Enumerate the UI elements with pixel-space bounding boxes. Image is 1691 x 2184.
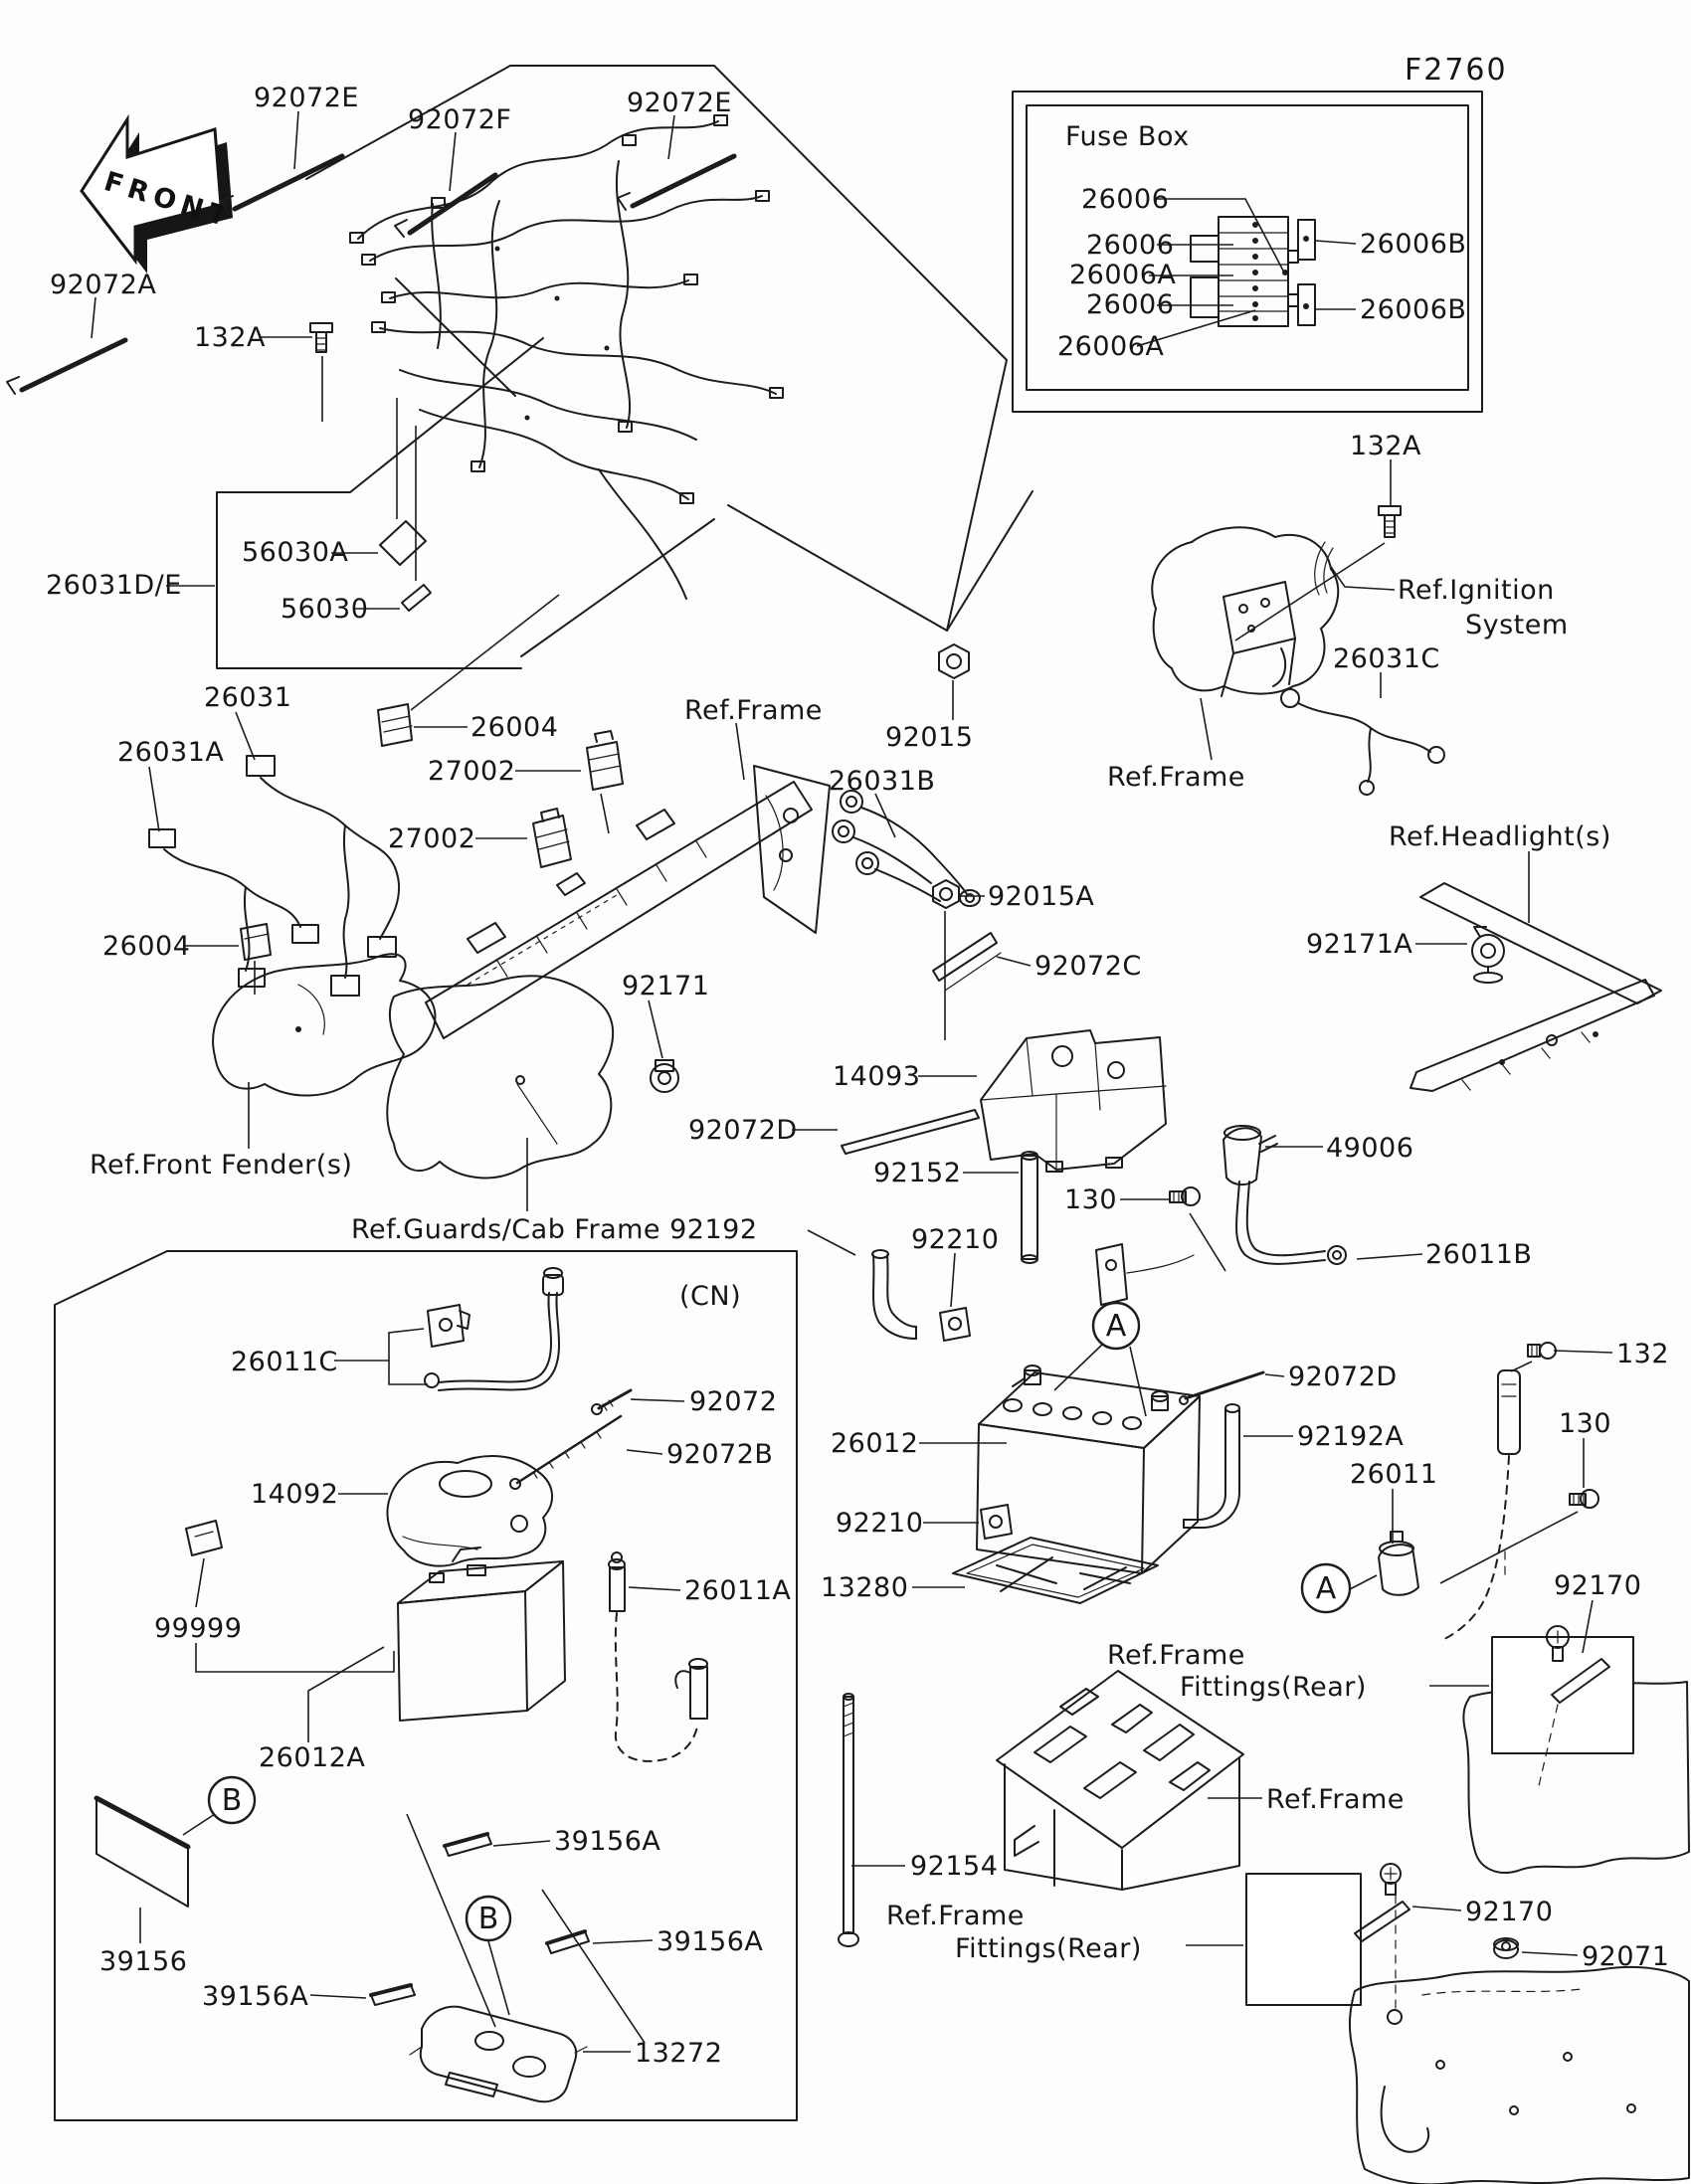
part-label: 92071: [1582, 1941, 1669, 1972]
panel-92170-top: [1492, 1626, 1633, 1790]
leader-line: [1331, 567, 1395, 590]
leader-line: [1412, 1907, 1461, 1911]
part-label: 92015A: [988, 881, 1094, 912]
leader-line: [808, 1230, 855, 1255]
part-label: 14093: [833, 1061, 920, 1092]
part-label: 26011A: [684, 1575, 791, 1606]
part-label: 26004: [470, 712, 558, 743]
ignition-frame-bracket-drawing: [1152, 527, 1338, 696]
battery-26012-drawing: [977, 1365, 1200, 1573]
part-label: 92210: [836, 1508, 923, 1539]
leader-line: [196, 1558, 204, 1607]
leader-line: [196, 1643, 394, 1672]
bolt-132: [1528, 1343, 1556, 1359]
sticker-99999: [186, 1521, 222, 1555]
part-label: Fittings(Rear): [955, 1933, 1142, 1964]
part-label: 39156A: [202, 1981, 308, 2012]
callout-circles-layer: AABB: [209, 1303, 1350, 1940]
bolt-132a-top: [310, 323, 332, 352]
leader-line: [488, 1941, 509, 2015]
rear-carrier-drawing: [997, 1671, 1243, 1890]
part-label: 26012: [831, 1428, 918, 1459]
callout-letter: B: [478, 1902, 499, 1936]
part-label: 26004: [102, 931, 190, 962]
leader-line: [411, 595, 559, 710]
clip-92210-bottom: [981, 1505, 1012, 1539]
leader-line: [493, 1841, 550, 1846]
cable-26011c-drawing: [425, 1268, 563, 1390]
leader-line: [334, 1329, 424, 1361]
part-label: 92072C: [1034, 951, 1142, 982]
part-labels-layer: 92072E92072F92072A132A92072EFuse Box2600…: [46, 83, 1669, 2069]
tray-13272-drawing: [410, 2007, 587, 2102]
leader-line: [668, 115, 674, 159]
leader-line: [294, 111, 298, 169]
bolt-92154: [839, 1694, 858, 1946]
clamp-92171: [651, 1060, 678, 1092]
leader-line: [1130, 1347, 1146, 1416]
part-label: 130: [1064, 1184, 1117, 1215]
harness-26031b-drawing: [833, 791, 980, 906]
part-label: 92015: [885, 722, 973, 753]
part-label: 92072A: [50, 270, 156, 300]
part-label: 99999: [154, 1613, 242, 1644]
part-label: 92072: [689, 1386, 777, 1417]
guards-cab-frame-drawing: [387, 976, 613, 1178]
part-label: 26006B: [1360, 294, 1466, 325]
leader-line: [450, 132, 456, 191]
parts-diagram-canvas: F2760 FRONT: [0, 0, 1691, 2184]
part-label: Fittings(Rear): [1180, 1672, 1367, 1703]
part-label: 13280: [821, 1572, 908, 1603]
bolt-130-right: [1570, 1490, 1598, 1508]
part-label: 26012A: [259, 1742, 365, 1773]
part-label: 92170: [1465, 1897, 1553, 1927]
callout-letter: B: [222, 1783, 243, 1818]
harness-26031a-drawing: [149, 829, 318, 987]
part-label: Ref.Frame: [1107, 762, 1245, 793]
leader-line: [601, 794, 609, 833]
plate-56030a: [380, 521, 426, 565]
part-label: 26031D/E: [46, 570, 182, 601]
part-label: 49006: [1326, 1133, 1413, 1164]
headlight-bracket-drawing: [1410, 883, 1661, 1091]
leader-line: [149, 767, 159, 831]
part-label: 39156A: [657, 1926, 763, 1957]
part-label: 132A: [194, 322, 266, 353]
leader-line: [308, 1647, 384, 1742]
leader-line: [631, 1399, 684, 1401]
part-label: (CN): [679, 1281, 741, 1312]
part-label: 26006A: [1057, 331, 1164, 362]
grommet-92071: [1494, 1938, 1518, 1958]
leader-line: [997, 957, 1031, 966]
part-label: 130: [1559, 1408, 1611, 1439]
part-label: Ref.Frame: [684, 695, 823, 726]
part-label: 92152: [873, 1158, 961, 1188]
leader-line: [1316, 241, 1356, 244]
leader-line: [236, 712, 255, 760]
part-label: Fuse Box: [1065, 121, 1190, 152]
strip-39156a-1: [445, 1834, 491, 1856]
part-label: Ref.Headlight(s): [1389, 821, 1611, 852]
battery-26012a-drawing: [398, 1547, 565, 1721]
leader-line: [310, 1995, 366, 1998]
relay-27002-top: [587, 731, 623, 790]
screw-92072b: [510, 1416, 621, 1489]
leader-line: [1201, 698, 1212, 760]
part-label: 26006: [1086, 230, 1174, 261]
part-label: 92072F: [408, 104, 511, 135]
leader-line: [183, 1814, 215, 1835]
part-label: Ref.Front Fender(s): [90, 1150, 352, 1181]
part-label: 56030: [281, 594, 368, 625]
part-label: 26006: [1081, 184, 1169, 215]
sticker-39156: [96, 1798, 188, 1907]
part-label: 26011: [1350, 1459, 1437, 1490]
part-label: 56030A: [242, 537, 348, 568]
relay-27002-bottom: [533, 809, 571, 867]
leader-line: [629, 1587, 680, 1590]
part-label: Ref.Frame: [1107, 1640, 1245, 1671]
part-label: 92072D: [688, 1115, 798, 1146]
front-arrow: FRONT: [82, 119, 236, 273]
bracket-92072c: [933, 933, 1001, 991]
leader-line: [627, 1450, 662, 1454]
strip-56030: [402, 585, 431, 611]
part-label: 26031B: [829, 766, 935, 797]
rod-92072d-left: [842, 1110, 979, 1154]
leader-line: [1265, 1374, 1284, 1376]
leader-line: [1554, 1351, 1612, 1353]
cable-26011-drawing: [1379, 1370, 1520, 1641]
part-label: 92072D: [1288, 1362, 1398, 1392]
panel-fittings-rear-bottom: [1246, 1864, 1409, 2011]
part-label: 13272: [635, 2038, 722, 2069]
callout-letter: A: [1106, 1309, 1127, 1344]
leader-line: [389, 1361, 428, 1384]
part-label: 92192A: [1297, 1421, 1404, 1452]
leader-line: [951, 1253, 955, 1307]
figure-code: F2760: [1405, 53, 1508, 88]
part-label: 92171A: [1306, 929, 1412, 960]
bolt-132a-right: [1379, 506, 1401, 537]
skid-plate-drawing: [1350, 1967, 1689, 2184]
part-label: 132: [1616, 1339, 1669, 1369]
part-label: 92171: [622, 971, 709, 1001]
part-label: Ref.Frame: [1266, 1784, 1405, 1815]
nut-92015a: [933, 880, 959, 908]
leader-line: [649, 1001, 662, 1058]
part-label: 27002: [388, 823, 475, 854]
diagram-artwork: [7, 66, 1689, 2184]
front-fender-drawing: [213, 954, 435, 1095]
part-label: 92154: [910, 1851, 998, 1882]
battery-case-14093-drawing: [981, 1030, 1166, 1172]
tube-92152: [1022, 1152, 1037, 1263]
fuse-stack-drawing: [1191, 217, 1315, 326]
boot-49006: [1223, 1126, 1277, 1184]
leader-line: [1522, 1952, 1578, 1955]
part-label: 92072B: [666, 1439, 773, 1470]
leader-line: [92, 297, 95, 338]
rod-92072d-right: [1180, 1372, 1263, 1404]
part-label: 26031A: [117, 737, 224, 768]
connector-26004-right: [378, 704, 412, 746]
clip-92210-top: [940, 1308, 970, 1341]
part-label: 26011C: [231, 1347, 338, 1377]
part-label: Ref.Ignition: [1398, 575, 1555, 606]
part-label: 26006B: [1360, 229, 1466, 260]
leader-line: [1357, 1254, 1422, 1259]
bolt-130-left: [1170, 1187, 1200, 1205]
part-label: 39156A: [554, 1826, 660, 1857]
part-label: 26006A: [1069, 260, 1176, 290]
part-label: 39156: [99, 1946, 187, 1977]
leader-line: [1511, 1362, 1532, 1371]
rod-92192a: [1184, 1404, 1239, 1528]
part-label: 14092: [251, 1479, 338, 1510]
part-label: 27002: [428, 756, 515, 787]
callout-letter: A: [1316, 1571, 1337, 1606]
part-label: 92210: [911, 1224, 999, 1255]
part-label: 132A: [1350, 431, 1421, 461]
leader-line: [542, 1890, 645, 2043]
leader-line: [593, 1940, 653, 1943]
strip-39156a-3: [371, 1985, 415, 2005]
parts-diagram-page: F2760 FRONT: [0, 0, 1691, 2184]
leader-line: [736, 723, 744, 780]
part-label: 92072E: [627, 88, 732, 118]
part-label: 26006: [1086, 289, 1174, 320]
harness-26031c-drawing: [1281, 689, 1444, 795]
leader-line: [1190, 1213, 1225, 1271]
screw-92072: [592, 1390, 631, 1414]
part-label: System: [1465, 610, 1569, 640]
part-label: Ref.Frame: [886, 1901, 1025, 1931]
leader-line: [1235, 543, 1385, 640]
leader-line: [1054, 1345, 1102, 1390]
part-label: 26011B: [1425, 1239, 1532, 1270]
part-label: 92072E: [254, 83, 359, 113]
harness-26031-drawing: [247, 756, 399, 996]
part-label: 26031: [204, 682, 291, 713]
connector-26004-left: [241, 924, 271, 960]
part-label: 92170: [1554, 1570, 1641, 1601]
tube-92192: [872, 1250, 916, 1339]
part-label: 26031C: [1333, 643, 1440, 674]
nut-92015: [939, 644, 969, 678]
part-label: Ref.Guards/Cab Frame 92192: [351, 1214, 758, 1245]
leader-line: [1350, 1575, 1377, 1589]
